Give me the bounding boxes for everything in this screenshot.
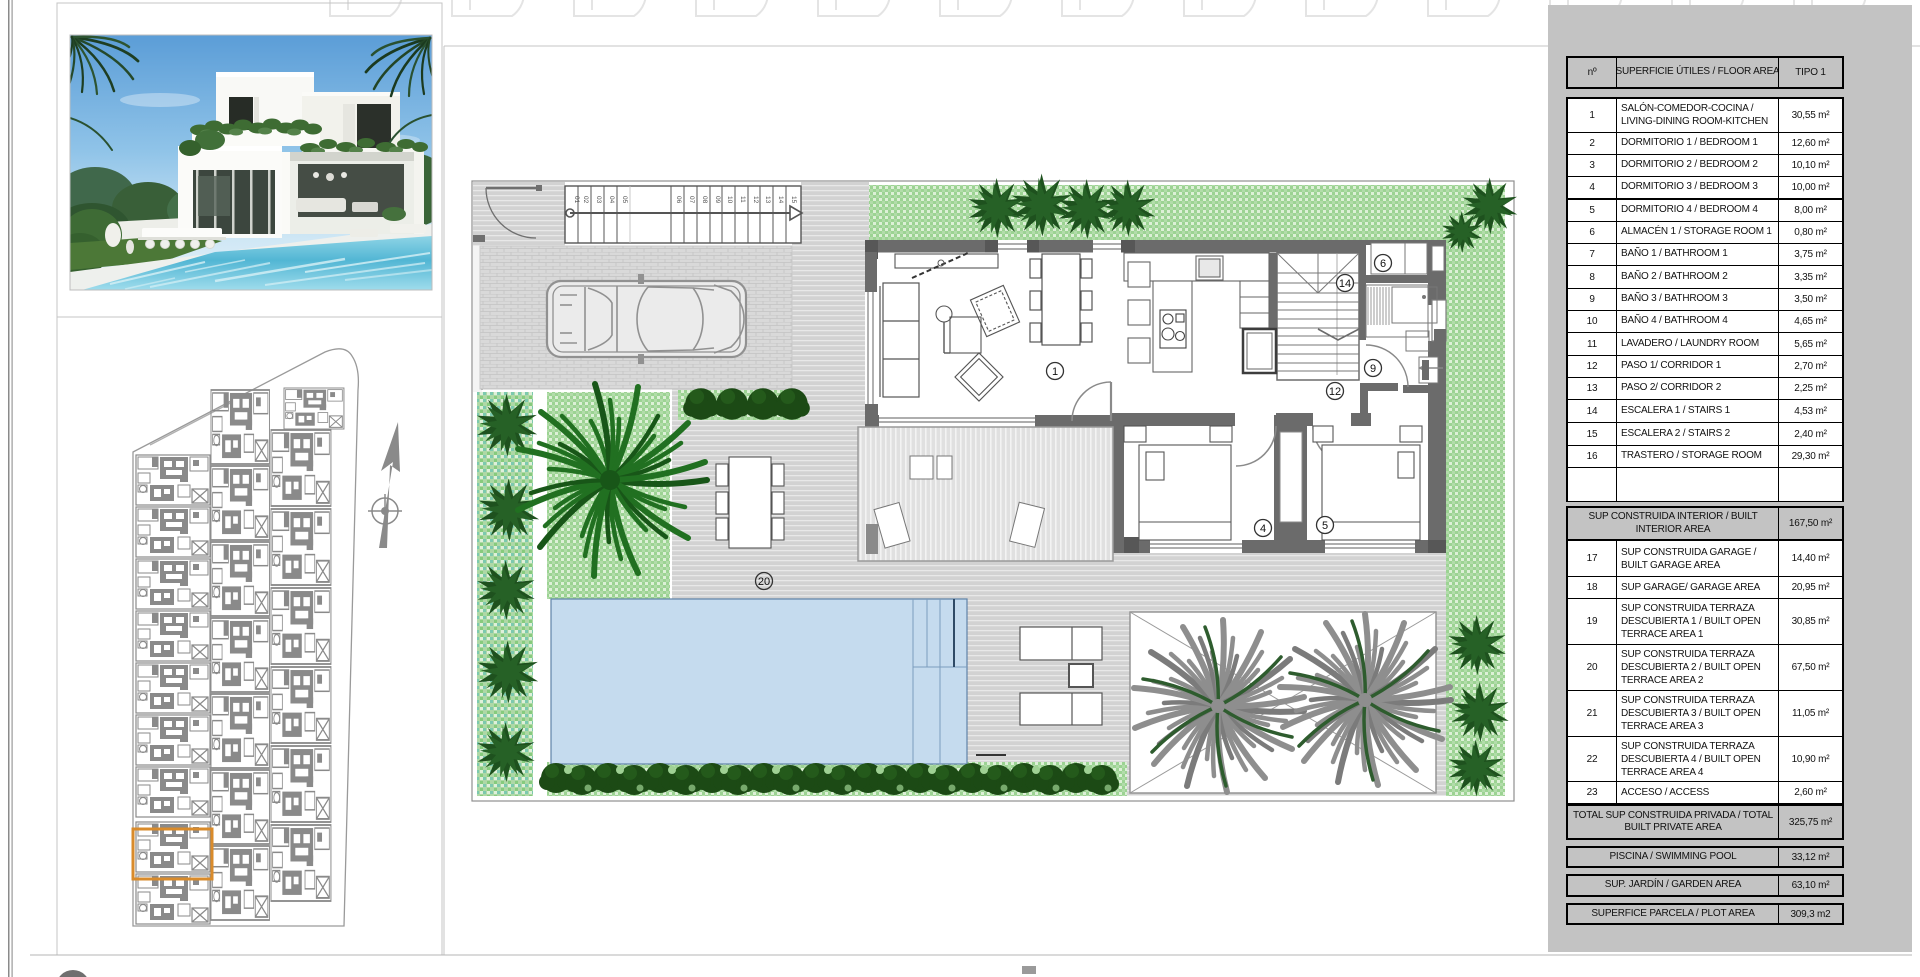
svg-text:9: 9 bbox=[1370, 363, 1376, 375]
svg-text:09: 09 bbox=[714, 196, 721, 204]
svg-text:4: 4 bbox=[1260, 523, 1266, 535]
svg-text:14: 14 bbox=[1339, 278, 1351, 290]
svg-text:13: 13 bbox=[764, 196, 771, 204]
svg-text:01: 01 bbox=[573, 196, 580, 204]
svg-text:08: 08 bbox=[701, 196, 708, 204]
svg-text:6: 6 bbox=[1380, 258, 1386, 270]
svg-text:04: 04 bbox=[608, 196, 615, 204]
svg-text:03: 03 bbox=[595, 196, 602, 204]
svg-text:1: 1 bbox=[1052, 366, 1058, 378]
svg-text:10: 10 bbox=[726, 196, 733, 204]
svg-text:11: 11 bbox=[739, 196, 746, 203]
svg-text:12: 12 bbox=[752, 196, 759, 204]
svg-text:20: 20 bbox=[758, 576, 770, 588]
svg-text:12: 12 bbox=[1329, 386, 1341, 398]
svg-text:14: 14 bbox=[777, 196, 784, 204]
svg-text:02: 02 bbox=[582, 196, 589, 204]
svg-text:5: 5 bbox=[1322, 520, 1328, 532]
svg-text:06: 06 bbox=[675, 196, 682, 204]
svg-text:05: 05 bbox=[621, 196, 628, 204]
svg-text:15: 15 bbox=[790, 196, 797, 204]
svg-text:07: 07 bbox=[688, 196, 695, 204]
